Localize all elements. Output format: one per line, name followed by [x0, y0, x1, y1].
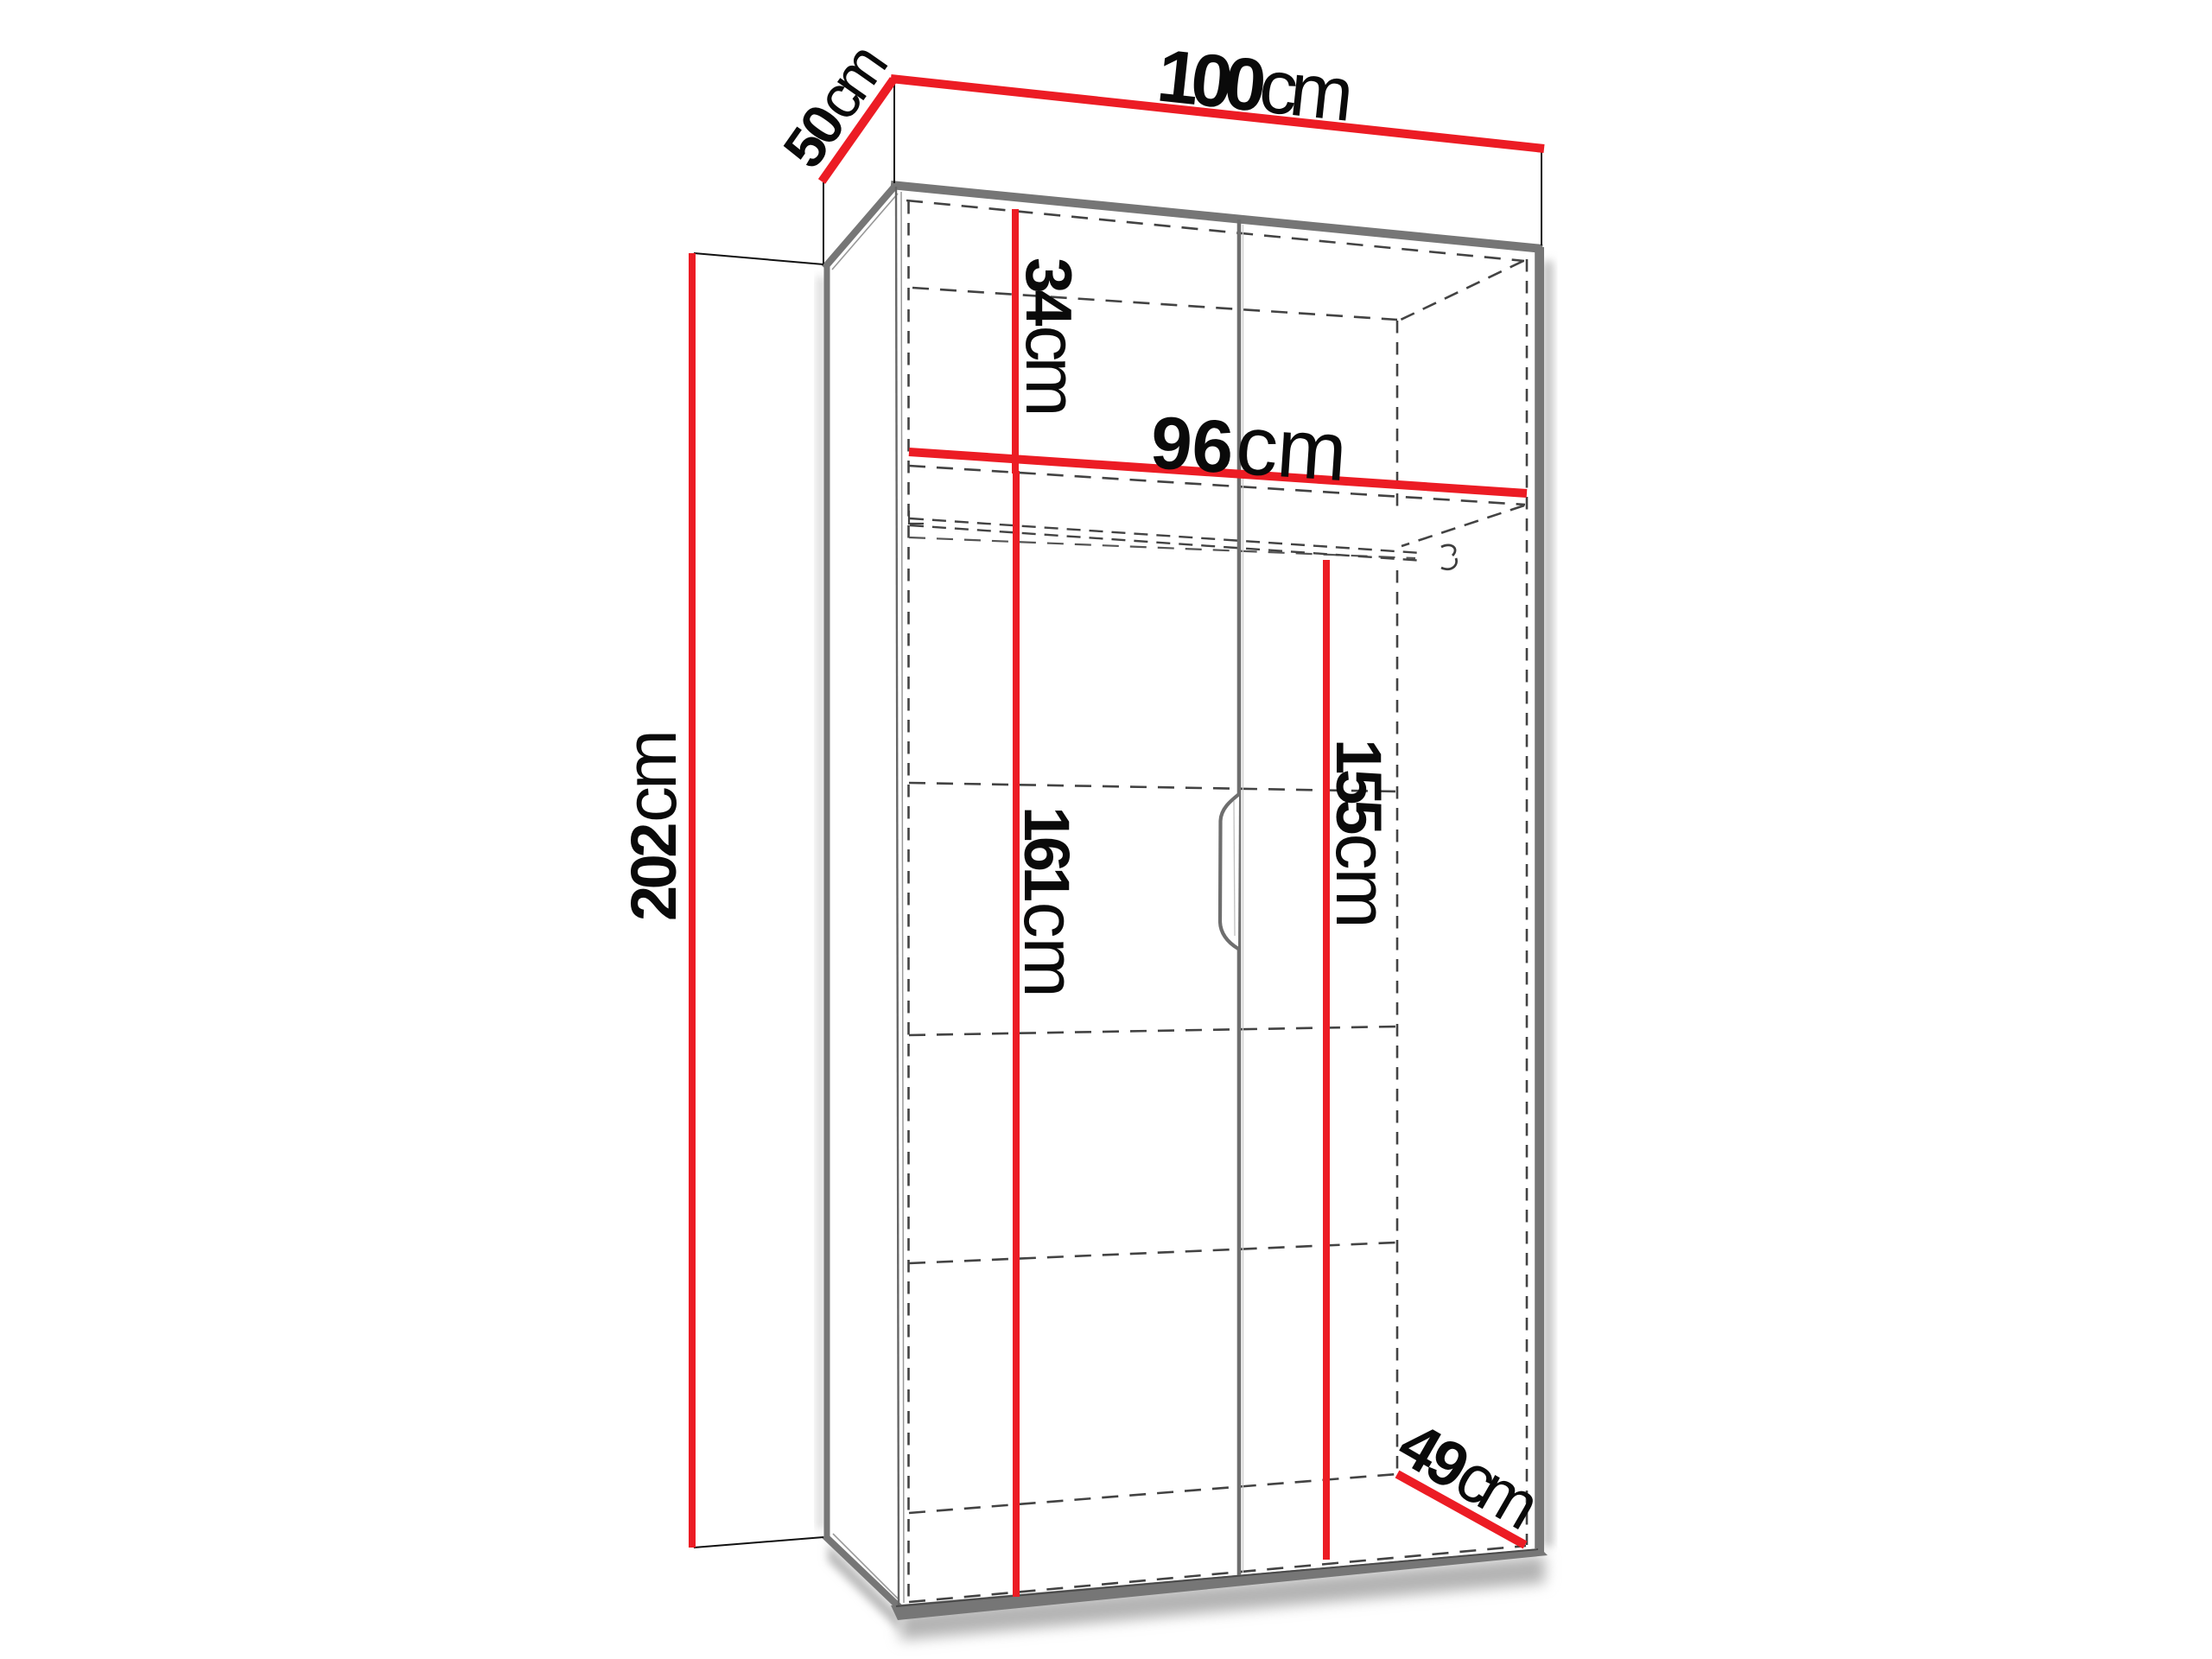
svg-text:96cm: 96cm: [1148, 391, 1350, 499]
svg-text:155cm: 155cm: [1321, 739, 1402, 926]
svg-text:202cm: 202cm: [610, 733, 691, 921]
svg-text:34cm: 34cm: [1011, 257, 1092, 412]
svg-text:161cm: 161cm: [1009, 806, 1090, 997]
